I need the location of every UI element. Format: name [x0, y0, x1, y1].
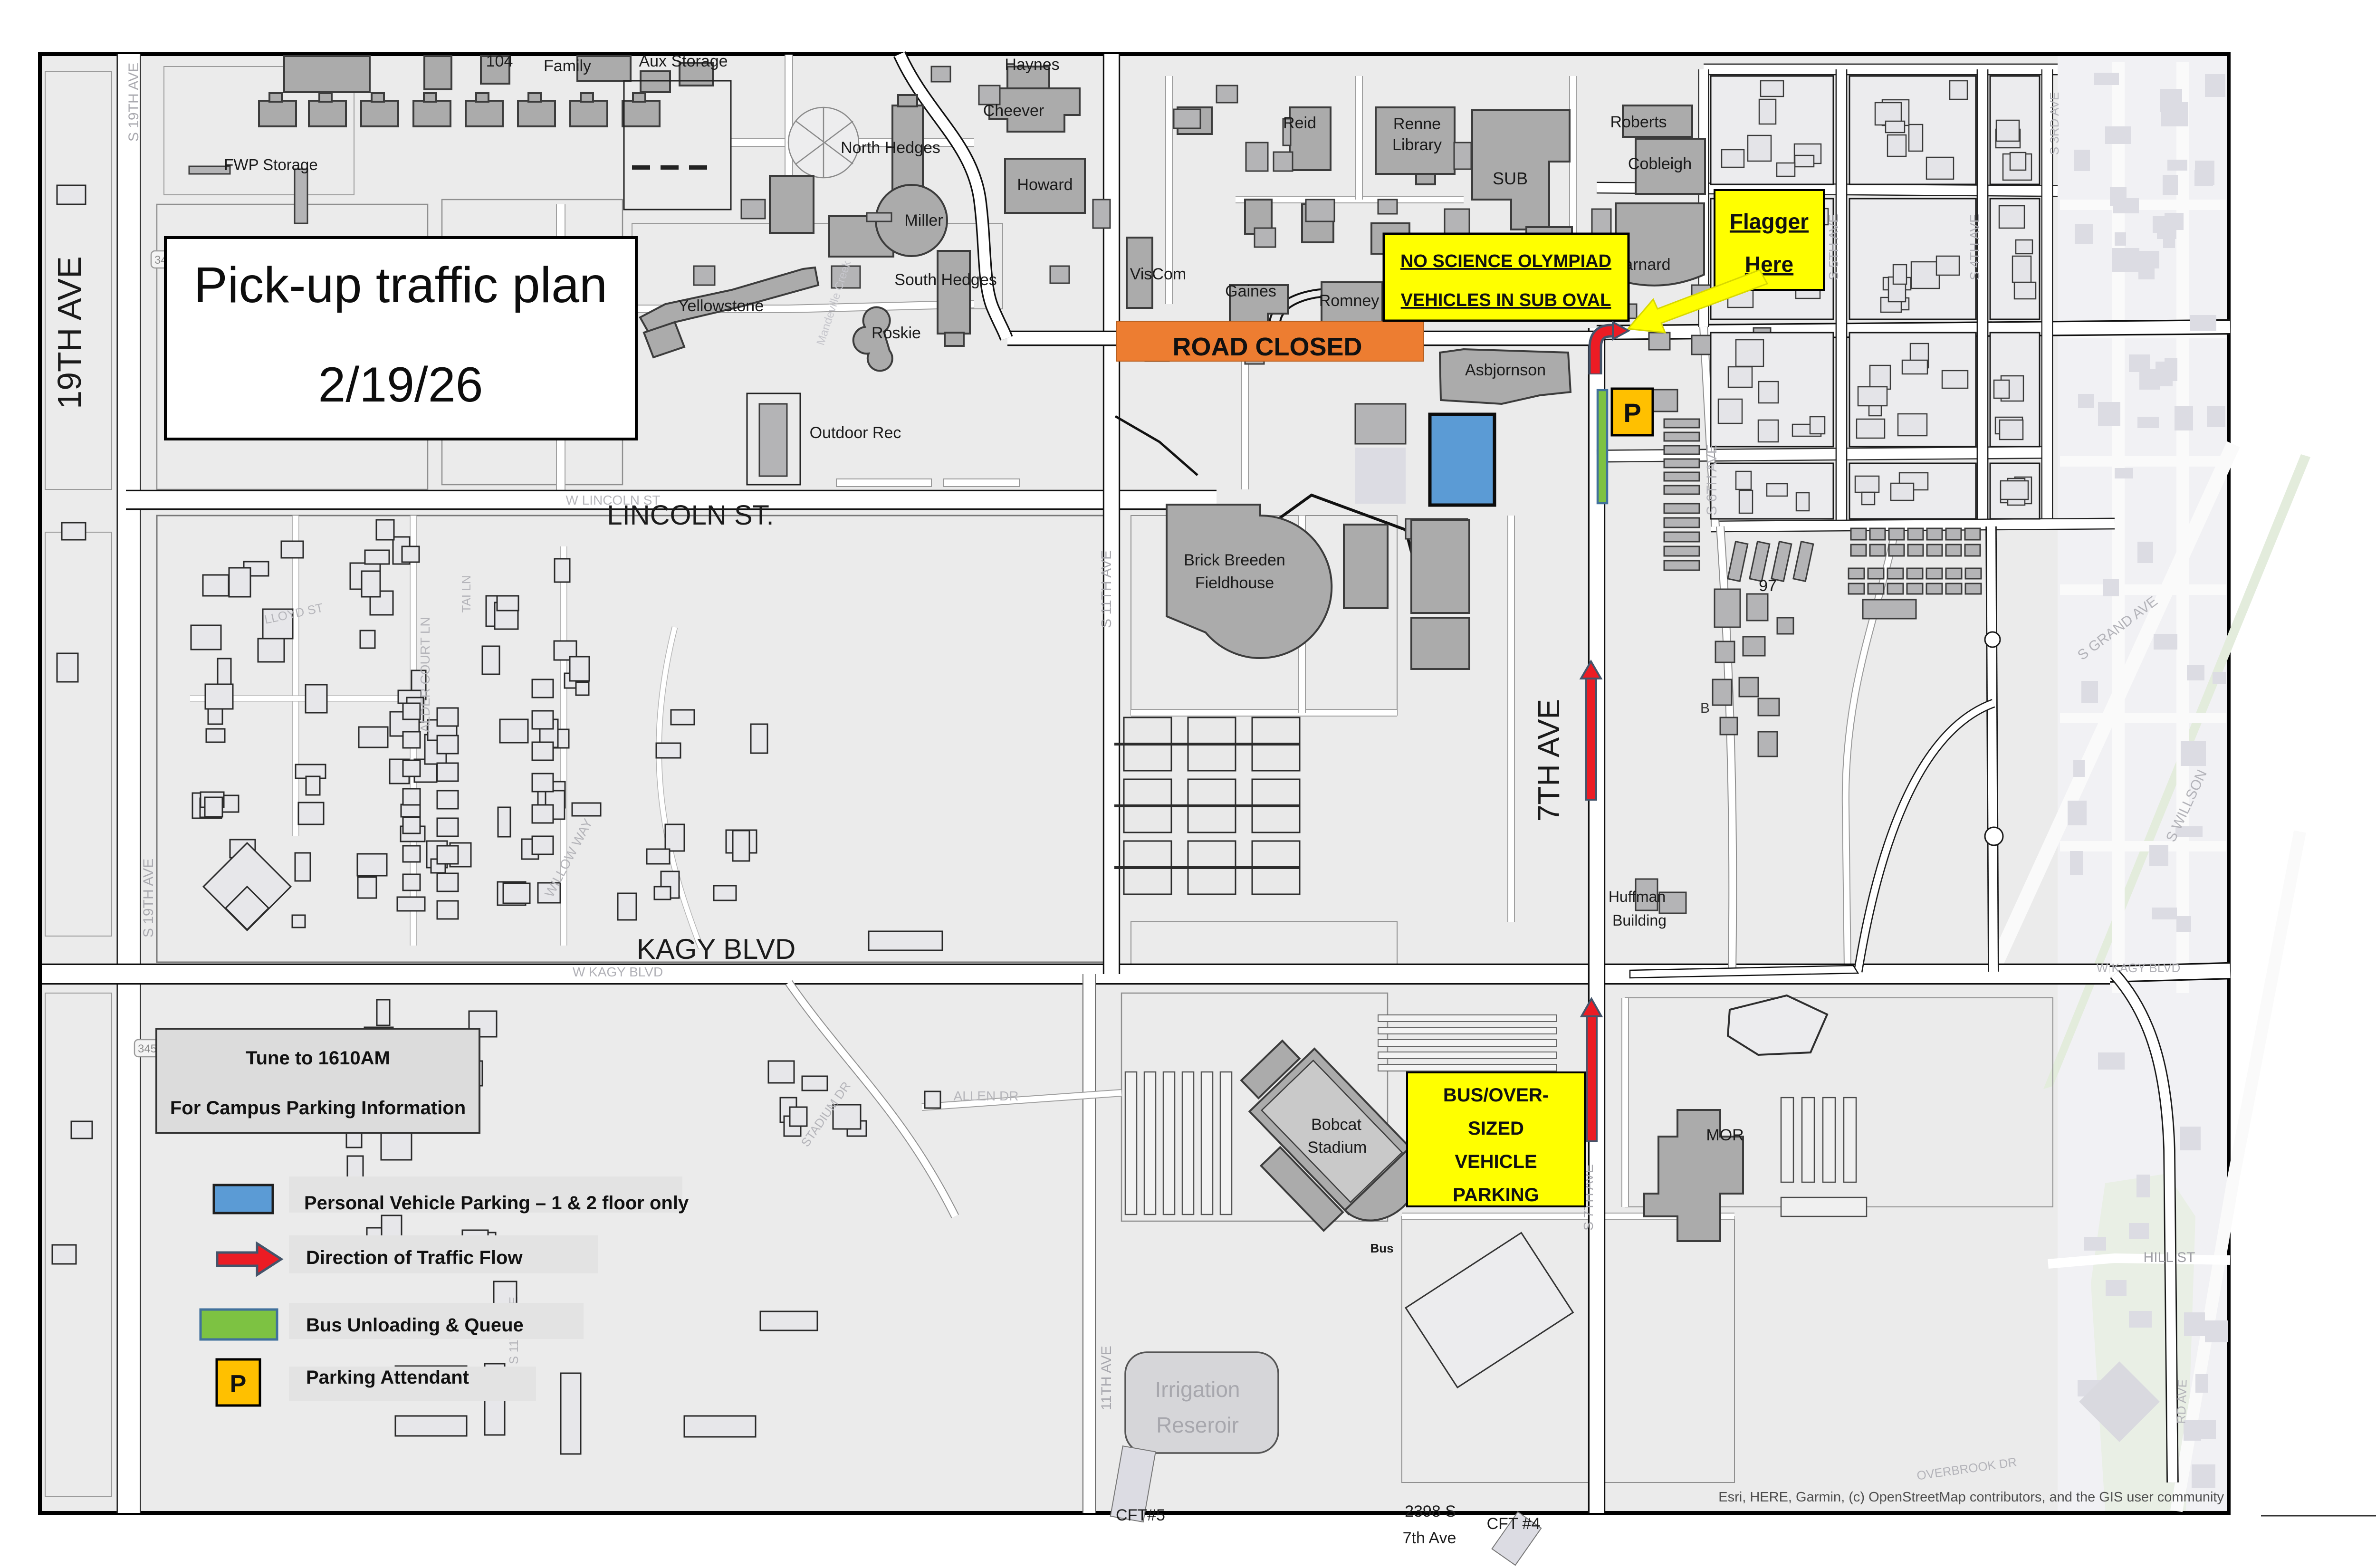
svg-text:S 4TH AVE: S 4TH AVE	[1967, 214, 1982, 280]
svg-text:19TH AVE: 19TH AVE	[51, 256, 88, 409]
svg-text:345: 345	[138, 1042, 157, 1055]
svg-text:VisCom: VisCom	[1130, 265, 1186, 283]
svg-text:VEHICLE: VEHICLE	[1455, 1151, 1537, 1172]
svg-text:Huffman: Huffman	[1609, 888, 1666, 905]
svg-text:South Hedges: South Hedges	[894, 271, 997, 289]
svg-text:Library: Library	[1392, 136, 1442, 154]
svg-text:CFT#5: CFT#5	[1116, 1506, 1165, 1524]
svg-text:P: P	[1623, 398, 1641, 428]
svg-text:Stadium: Stadium	[1308, 1138, 1367, 1157]
svg-text:Esri, HERE, Garmin, (c) OpenSt: Esri, HERE, Garmin, (c) OpenStreetMap co…	[1718, 1490, 2224, 1505]
svg-text:HILL ST: HILL ST	[2144, 1250, 2195, 1265]
svg-text:CFT #4: CFT #4	[1487, 1515, 1541, 1533]
svg-text:NO SCIENCE OLYMPIAD: NO SCIENCE OLYMPIAD	[1400, 251, 1611, 271]
svg-text:Bus: Bus	[1370, 1241, 1393, 1255]
svg-text:S 11TH AVE: S 11TH AVE	[1099, 550, 1114, 628]
svg-text:Irrigation: Irrigation	[1155, 1377, 1240, 1402]
svg-text:TAI LN: TAI LN	[459, 575, 473, 613]
svg-text:2/19/26: 2/19/26	[318, 357, 483, 412]
svg-text:S 19TH AVE: S 19TH AVE	[126, 63, 142, 142]
svg-text:SIZED: SIZED	[1468, 1118, 1524, 1139]
svg-text:Roberts: Roberts	[1610, 113, 1667, 131]
svg-text:FWP Storage: FWP Storage	[224, 156, 317, 173]
svg-text:PARKING: PARKING	[1453, 1185, 1539, 1205]
svg-text:Personal Vehicle Parking – 1 &: Personal Vehicle Parking – 1 & 2 floor o…	[304, 1193, 689, 1214]
svg-text:VEHICLES IN SUB OVAL: VEHICLES IN SUB OVAL	[1401, 290, 1611, 310]
svg-text:97: 97	[1759, 577, 1777, 595]
svg-text:ROAD CLOSED: ROAD CLOSED	[1172, 333, 1362, 361]
svg-text:Reid: Reid	[1283, 114, 1316, 132]
svg-text:BUS/OVER-: BUS/OVER-	[1443, 1085, 1549, 1106]
svg-text:11TH AVE: 11TH AVE	[1099, 1346, 1114, 1410]
svg-text:Miller: Miller	[904, 211, 943, 229]
svg-text:104: 104	[486, 52, 513, 70]
svg-text:Fieldhouse: Fieldhouse	[1195, 574, 1274, 592]
svg-text:Cheever: Cheever	[983, 102, 1044, 120]
svg-text:S 5TH AVE: S 5TH AVE	[1826, 214, 1841, 280]
svg-text:S 3RD AVE: S 3RD AVE	[2047, 92, 2061, 155]
svg-text:Outdoor Rec: Outdoor Rec	[810, 424, 901, 442]
svg-text:Pick-up traffic plan: Pick-up traffic plan	[194, 257, 607, 313]
svg-text:P: P	[230, 1370, 247, 1398]
svg-text:W KAGY BLVD: W KAGY BLVD	[2097, 961, 2181, 975]
svg-text:7TH AVE: 7TH AVE	[1532, 699, 1566, 822]
svg-text:Building: Building	[1612, 912, 1667, 929]
svg-text:Flagger: Flagger	[1730, 209, 1809, 234]
svg-text:Howard: Howard	[1017, 176, 1073, 194]
svg-text:Renne: Renne	[1393, 115, 1441, 133]
svg-text:S 19TH AVE: S 19TH AVE	[141, 859, 156, 937]
svg-text:Tune to 1610AM: Tune to 1610AM	[246, 1048, 390, 1069]
svg-text:KAGY BLVD: KAGY BLVD	[637, 933, 796, 965]
svg-text:W LINCOLN ST: W LINCOLN ST	[565, 493, 660, 507]
svg-text:For Campus Parking Information: For Campus Parking Information	[170, 1098, 466, 1119]
svg-text:Cobleigh: Cobleigh	[1628, 155, 1692, 173]
svg-text:Parking Attendant: Parking Attendant	[306, 1367, 469, 1388]
svg-text:Asbjornson: Asbjornson	[1465, 361, 1546, 379]
svg-text:S 6TH AVE: S 6TH AVE	[1704, 444, 1720, 516]
svg-text:ALLEN DR: ALLEN DR	[954, 1089, 1019, 1103]
svg-text:W KAGY BLVD: W KAGY BLVD	[573, 965, 663, 979]
svg-text:Reseroir: Reseroir	[1156, 1413, 1239, 1437]
svg-text:MOR: MOR	[1706, 1126, 1744, 1144]
svg-text:Romney: Romney	[1319, 292, 1380, 310]
svg-text:Bus Unloading & Queue: Bus Unloading & Queue	[306, 1315, 524, 1336]
svg-text:SUB: SUB	[1493, 169, 1528, 188]
svg-text:Family: Family	[544, 57, 591, 75]
svg-text:Gaines: Gaines	[1225, 282, 1276, 300]
svg-text:B: B	[1700, 700, 1710, 716]
svg-text:Aux Storage: Aux Storage	[639, 52, 728, 70]
svg-text:Brick Breeden: Brick Breeden	[1184, 551, 1285, 569]
svg-text:Haynes: Haynes	[1005, 56, 1059, 74]
svg-text:North Hedges: North Hedges	[841, 139, 940, 157]
svg-text:2398 S: 2398 S	[1405, 1502, 1456, 1520]
svg-text:Yellowstone: Yellowstone	[678, 297, 764, 315]
svg-text:Direction of Traffic Flow: Direction of Traffic Flow	[306, 1247, 523, 1268]
svg-text:7th Ave: 7th Ave	[1403, 1529, 1456, 1547]
svg-text:ALDER COURT LN: ALDER COURT LN	[418, 617, 432, 732]
svg-text:Bobcat: Bobcat	[1311, 1116, 1361, 1134]
svg-text:RD AVE: RD AVE	[2174, 1379, 2189, 1424]
svg-text:Roskie: Roskie	[872, 324, 921, 342]
